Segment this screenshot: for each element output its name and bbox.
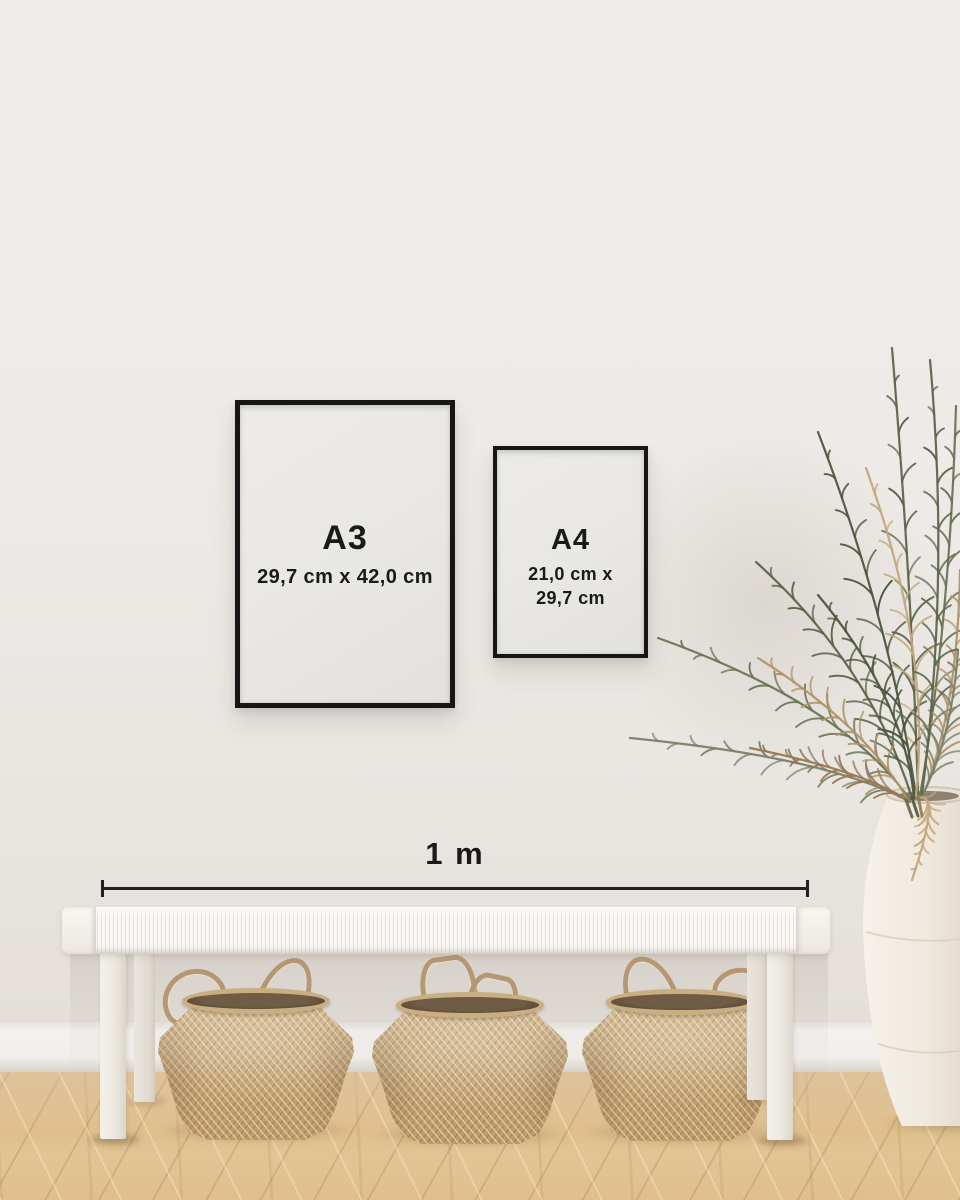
belly-basket-middle <box>372 966 568 1146</box>
bench-seat-endcap <box>796 907 830 954</box>
ruler-left-cap <box>101 880 104 897</box>
basket-body <box>372 1002 568 1144</box>
ruler-right-cap <box>806 880 809 897</box>
room-scene: A3 29,7 cm x 42,0 cm A4 21,0 cm x 29,7 c… <box>0 0 960 1200</box>
bench-leg <box>747 950 768 1100</box>
bench-leg <box>134 950 155 1102</box>
ruler-label: 1 m <box>102 836 808 872</box>
ruler-line <box>102 887 808 890</box>
frame-a3-paper: A3 29,7 cm x 42,0 cm <box>240 405 450 703</box>
palm-plant <box>560 320 960 820</box>
basket-rim <box>606 989 755 1015</box>
vase <box>850 782 960 1132</box>
frame-a3: A3 29,7 cm x 42,0 cm <box>235 400 455 708</box>
basket-rim <box>182 988 331 1014</box>
bench-leg <box>767 950 793 1140</box>
frame-a3-size-label: A3 <box>322 521 367 555</box>
belly-basket-left <box>158 962 354 1142</box>
frame-a3-dimensions: 29,7 cm x 42,0 cm <box>257 564 433 591</box>
bench-seat <box>62 907 830 954</box>
basket-rim <box>396 992 545 1018</box>
bench-seat-endcap <box>62 907 96 954</box>
bench-leg <box>100 950 126 1139</box>
basket-body <box>158 998 354 1140</box>
